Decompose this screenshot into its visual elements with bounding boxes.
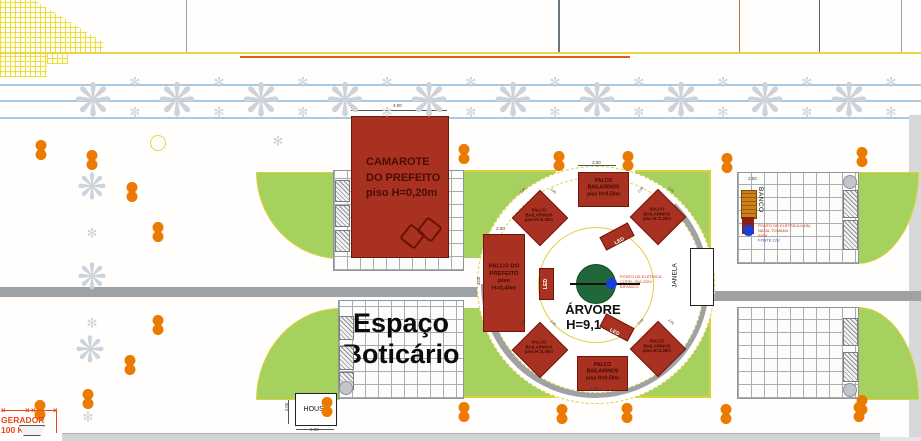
dimension-label: 2.00 [667, 318, 675, 326]
small-flake-icon: ✻ [718, 76, 729, 89]
street-tree-icon: ❋ [75, 332, 105, 368]
street-tree-icon: ❋ [662, 77, 701, 123]
bench-hatch [843, 220, 858, 250]
small-flake-icon: ✻ [718, 106, 729, 119]
small-flake-icon: ✻ [298, 106, 309, 119]
bench-hatch [335, 205, 350, 227]
lamp-circle-marker [150, 135, 166, 151]
small-flake-icon: ✻ [550, 76, 561, 89]
street-tree-icon: ❋ [410, 77, 449, 123]
dimension-label: 2.00 [519, 187, 527, 195]
dimension-label: 2.00 [310, 428, 319, 433]
street-tree-icon: ❋ [578, 77, 617, 123]
dimension-label: 2.00 [637, 318, 645, 326]
sprite-layer: ❋❋❋❋❋❋❋❋❋❋✻✻✻✻✻✻✻✻✻✻✻✻✻✻✻✻✻✻✻✻❋❋❋✻✻✻✻4.0… [0, 0, 921, 441]
small-flake-icon: ✻ [634, 106, 645, 119]
dimension-label: 2.00 [592, 161, 601, 166]
site-plan-canvas: BANCO PONTO DE ELÉTRICA ILUM. NATAL TOMA… [0, 0, 921, 441]
small-flake-icon: ✻ [214, 76, 225, 89]
palco-bailarinos-label: PALCO BAILARINOS piso H=0,30m [638, 340, 675, 354]
bollard-dot-marker [553, 151, 565, 171]
bollard-dot-marker [856, 147, 868, 167]
bench-hatch [843, 352, 858, 382]
small-flake-icon: ✻ [83, 411, 94, 424]
bollard-dot-marker [321, 397, 333, 417]
street-tree-icon: ❋ [326, 77, 365, 123]
small-flake-icon: ✻ [634, 76, 645, 89]
street-tree-icon: ❋ [746, 77, 785, 123]
bench-hatch [335, 180, 350, 202]
street-tree-icon: ❋ [77, 259, 107, 295]
small-flake-icon: ✻ [87, 227, 98, 240]
dimension-label: 2.00 [519, 319, 527, 327]
palco-bailarinos-label: PALCO BAILARINOS piso H=0,30m [520, 341, 557, 355]
bollard-dot-marker [458, 402, 470, 422]
small-flake-icon: ✻ [550, 106, 561, 119]
small-flake-icon: ✻ [886, 76, 897, 89]
planter-circle [843, 383, 857, 397]
bollard-dot-marker [721, 153, 733, 173]
small-flake-icon: ✻ [466, 106, 477, 119]
bollard-dot-marker [621, 403, 633, 423]
street-tree-icon: ❋ [158, 77, 197, 123]
planter-circle [339, 381, 353, 395]
street-tree-icon: ❋ [77, 169, 107, 205]
bollard-dot-marker [622, 151, 634, 171]
small-flake-icon: ✻ [214, 106, 225, 119]
dimension-label: 2.00 [667, 186, 675, 194]
bench-hatch [843, 190, 858, 218]
small-flake-icon: ✻ [466, 76, 477, 89]
bollard-dot-marker [152, 222, 164, 242]
dimension-label: 2.00 [549, 319, 557, 327]
small-flake-icon: ✻ [87, 317, 98, 330]
small-flake-icon: ✻ [130, 106, 141, 119]
bench-hatch [339, 346, 354, 370]
palco-bailarinos-label: PALCO BAILARINOS piso H=0,30m [520, 209, 557, 223]
bollard-dot-marker [853, 402, 865, 422]
small-flake-icon: ✻ [382, 76, 393, 89]
street-tree-icon: ❋ [242, 77, 281, 123]
bench-hatch [339, 316, 354, 340]
dimension-label: 4.00 [393, 104, 402, 109]
dimension-label: 2.00 [637, 186, 645, 194]
street-tree-icon: ❋ [830, 77, 869, 123]
small-flake-icon: ✻ [273, 135, 284, 148]
dimension-label: 2.00 [590, 387, 599, 392]
planter-circle [843, 175, 857, 189]
street-tree-icon: ❋ [74, 77, 113, 123]
bollard-dot-marker [556, 404, 568, 424]
bollard-dot-marker [152, 315, 164, 335]
small-flake-icon: ✻ [886, 106, 897, 119]
bench-hatch [843, 318, 858, 346]
bollard-dot-marker [82, 389, 94, 409]
dimension-label: 2.00 [496, 227, 505, 232]
small-flake-icon: ✻ [382, 106, 393, 119]
small-flake-icon: ✻ [802, 106, 813, 119]
dimension-label: 2.00 [549, 187, 557, 195]
bollard-dot-marker [35, 140, 47, 160]
gerador-dim-line [56, 410, 57, 433]
dimension-label: 4.00 [477, 277, 482, 286]
gerador-dim-line [1, 410, 57, 411]
small-flake-icon: ✻ [130, 76, 141, 89]
bench-hatch [335, 230, 350, 252]
dimension-label: 2.00 [748, 177, 757, 182]
bollard-dot-marker [124, 355, 136, 375]
palco-bailarinos-label: PALCO BAILARINOS piso H=0,30m [638, 208, 675, 222]
small-flake-icon: ✻ [802, 76, 813, 89]
dimension-label: 2.00 [285, 403, 290, 412]
bollard-dot-marker [126, 182, 138, 202]
bollard-dot-marker [458, 144, 470, 164]
bollard-dot-marker [720, 404, 732, 424]
small-flake-icon: ✻ [298, 76, 309, 89]
street-tree-icon: ❋ [494, 77, 533, 123]
